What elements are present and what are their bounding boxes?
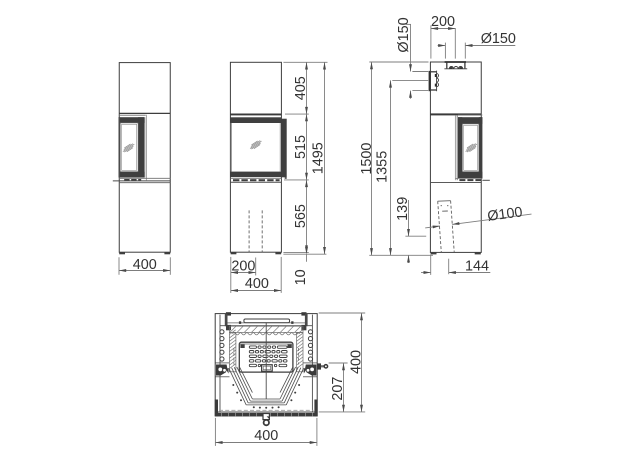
svg-text:1500: 1500	[359, 143, 375, 175]
svg-text:400: 400	[254, 428, 278, 444]
svg-text:Ø150: Ø150	[396, 17, 412, 52]
svg-text:400: 400	[133, 257, 157, 273]
svg-text:565: 565	[293, 204, 309, 228]
svg-text:1355: 1355	[375, 151, 391, 183]
svg-text:400: 400	[348, 350, 364, 374]
svg-text:400: 400	[245, 276, 269, 292]
svg-text:10: 10	[293, 269, 309, 285]
svg-text:515: 515	[293, 135, 309, 159]
svg-text:1495: 1495	[311, 142, 327, 174]
svg-text:405: 405	[293, 76, 309, 100]
svg-text:Ø150: Ø150	[481, 31, 516, 47]
svg-text:139: 139	[395, 197, 411, 221]
svg-text:144: 144	[465, 258, 489, 274]
svg-text:200: 200	[431, 14, 455, 30]
svg-text:200: 200	[231, 258, 255, 274]
svg-text:207: 207	[330, 377, 346, 401]
